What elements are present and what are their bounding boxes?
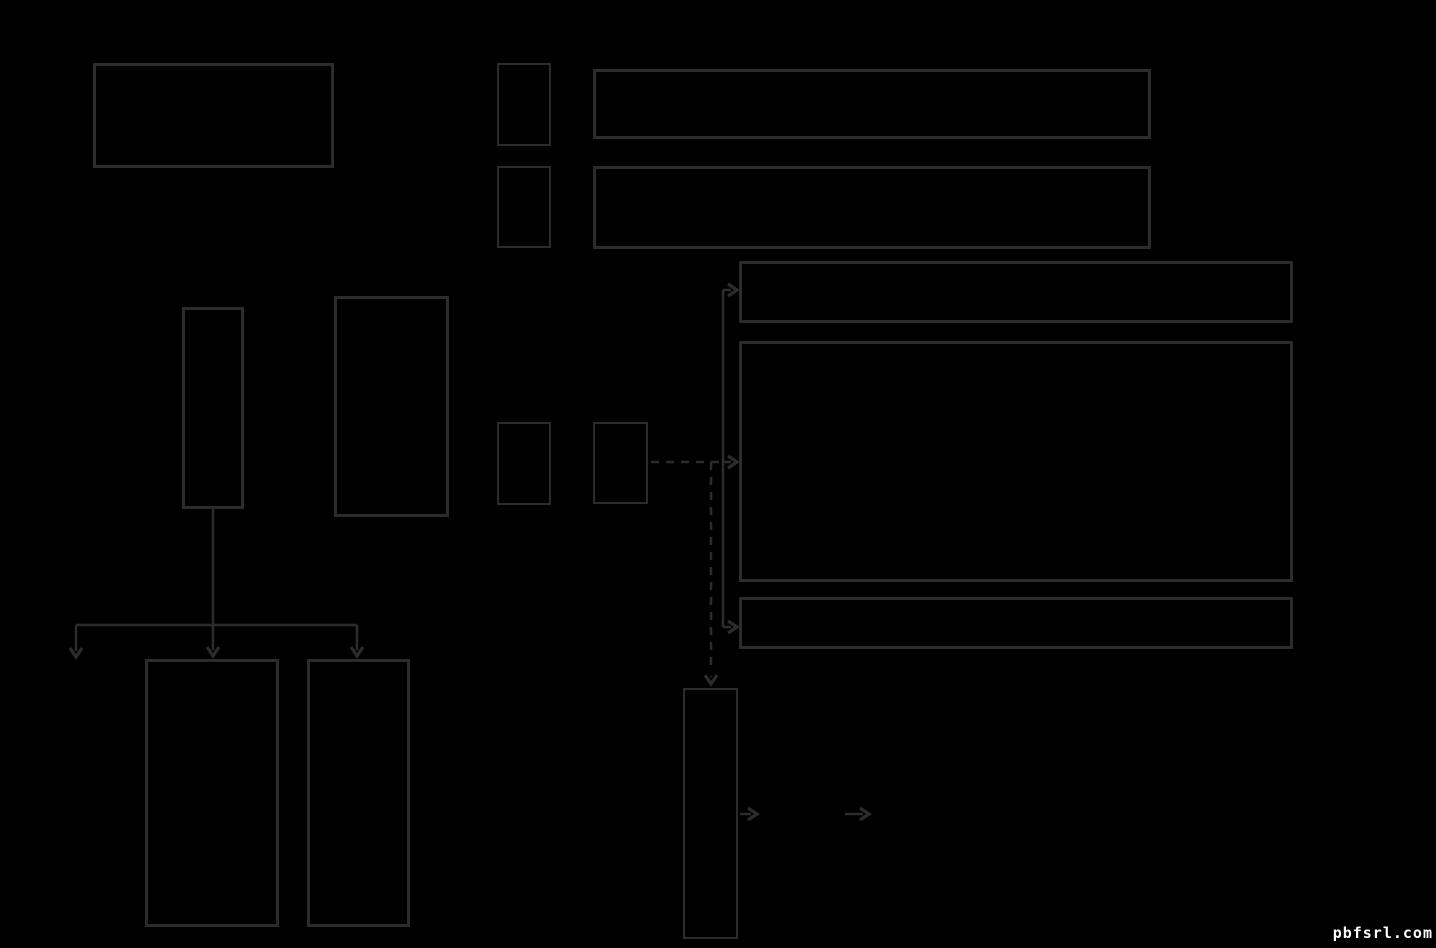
- diagram-box-bottom-narrow: [683, 688, 738, 939]
- diagram-box-small-row3: [497, 422, 551, 505]
- diagram-box-right-banner: [739, 261, 1293, 323]
- diagram-box-tall-medium: [334, 296, 449, 517]
- diagram-box-wide-row2: [593, 166, 1151, 249]
- diagram-canvas: pbfsrl.com: [0, 0, 1436, 948]
- diagram-box-bottom-left-2: [307, 659, 410, 927]
- diagram-box-small-row3b: [593, 422, 648, 504]
- diagram-box-small-row2: [497, 166, 551, 248]
- diagram-box-top-left-large: [93, 63, 334, 168]
- diagram-box-bottom-left-1: [145, 659, 279, 927]
- diagram-box-right-large: [739, 341, 1293, 582]
- diagram-box-small-row1: [497, 63, 551, 146]
- diagram-box-right-strip: [739, 597, 1293, 649]
- diagram-box-tall-narrow: [182, 307, 244, 509]
- watermark: pbfsrl.com: [1333, 926, 1433, 941]
- diagram-box-wide-row1: [593, 69, 1151, 139]
